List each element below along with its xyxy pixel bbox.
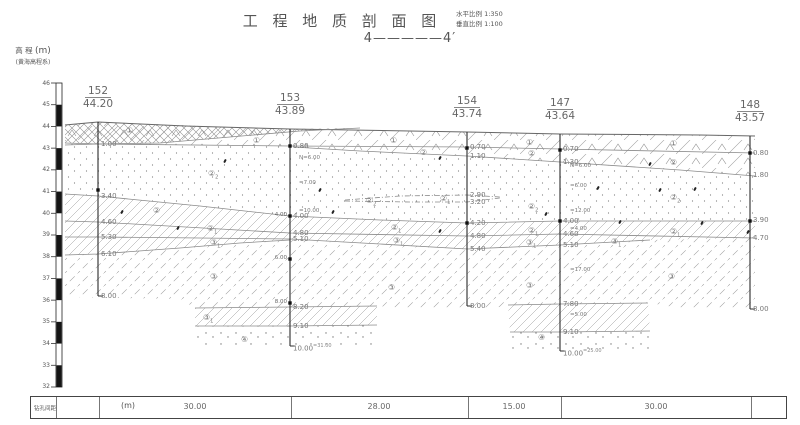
axis-black-segment (57, 235, 62, 257)
sample-marker (465, 146, 468, 149)
sample-marker (465, 221, 468, 224)
sample-marker (288, 301, 291, 304)
region-lens-147 (508, 303, 650, 332)
region-sand-4-147 (510, 331, 650, 352)
sample-marker (288, 257, 291, 260)
region-sand-4-153 (195, 325, 377, 347)
axis-black-segment (57, 105, 62, 127)
axis-black-segment (57, 148, 62, 170)
sample-marker (288, 144, 291, 147)
geological-profile-drawing: 工 程 地 质 剖 面 图 水平比例 1:350 垂直比例 1:100 4———… (0, 0, 800, 425)
axis-black-segment (57, 278, 62, 300)
sample-marker (558, 148, 561, 151)
axis-black-segment (57, 365, 62, 387)
sample-marker (748, 151, 751, 154)
sample-marker (558, 219, 561, 222)
region-lens-153 (195, 306, 377, 326)
sample-marker (96, 188, 99, 191)
axis-black-segment (57, 322, 62, 344)
sample-marker (288, 214, 291, 217)
profile-svg (0, 0, 800, 425)
sample-marker (748, 219, 751, 222)
axis-black-segment (57, 192, 62, 214)
strata-regions (65, 122, 755, 352)
elevation-scale-bar (51, 83, 62, 387)
